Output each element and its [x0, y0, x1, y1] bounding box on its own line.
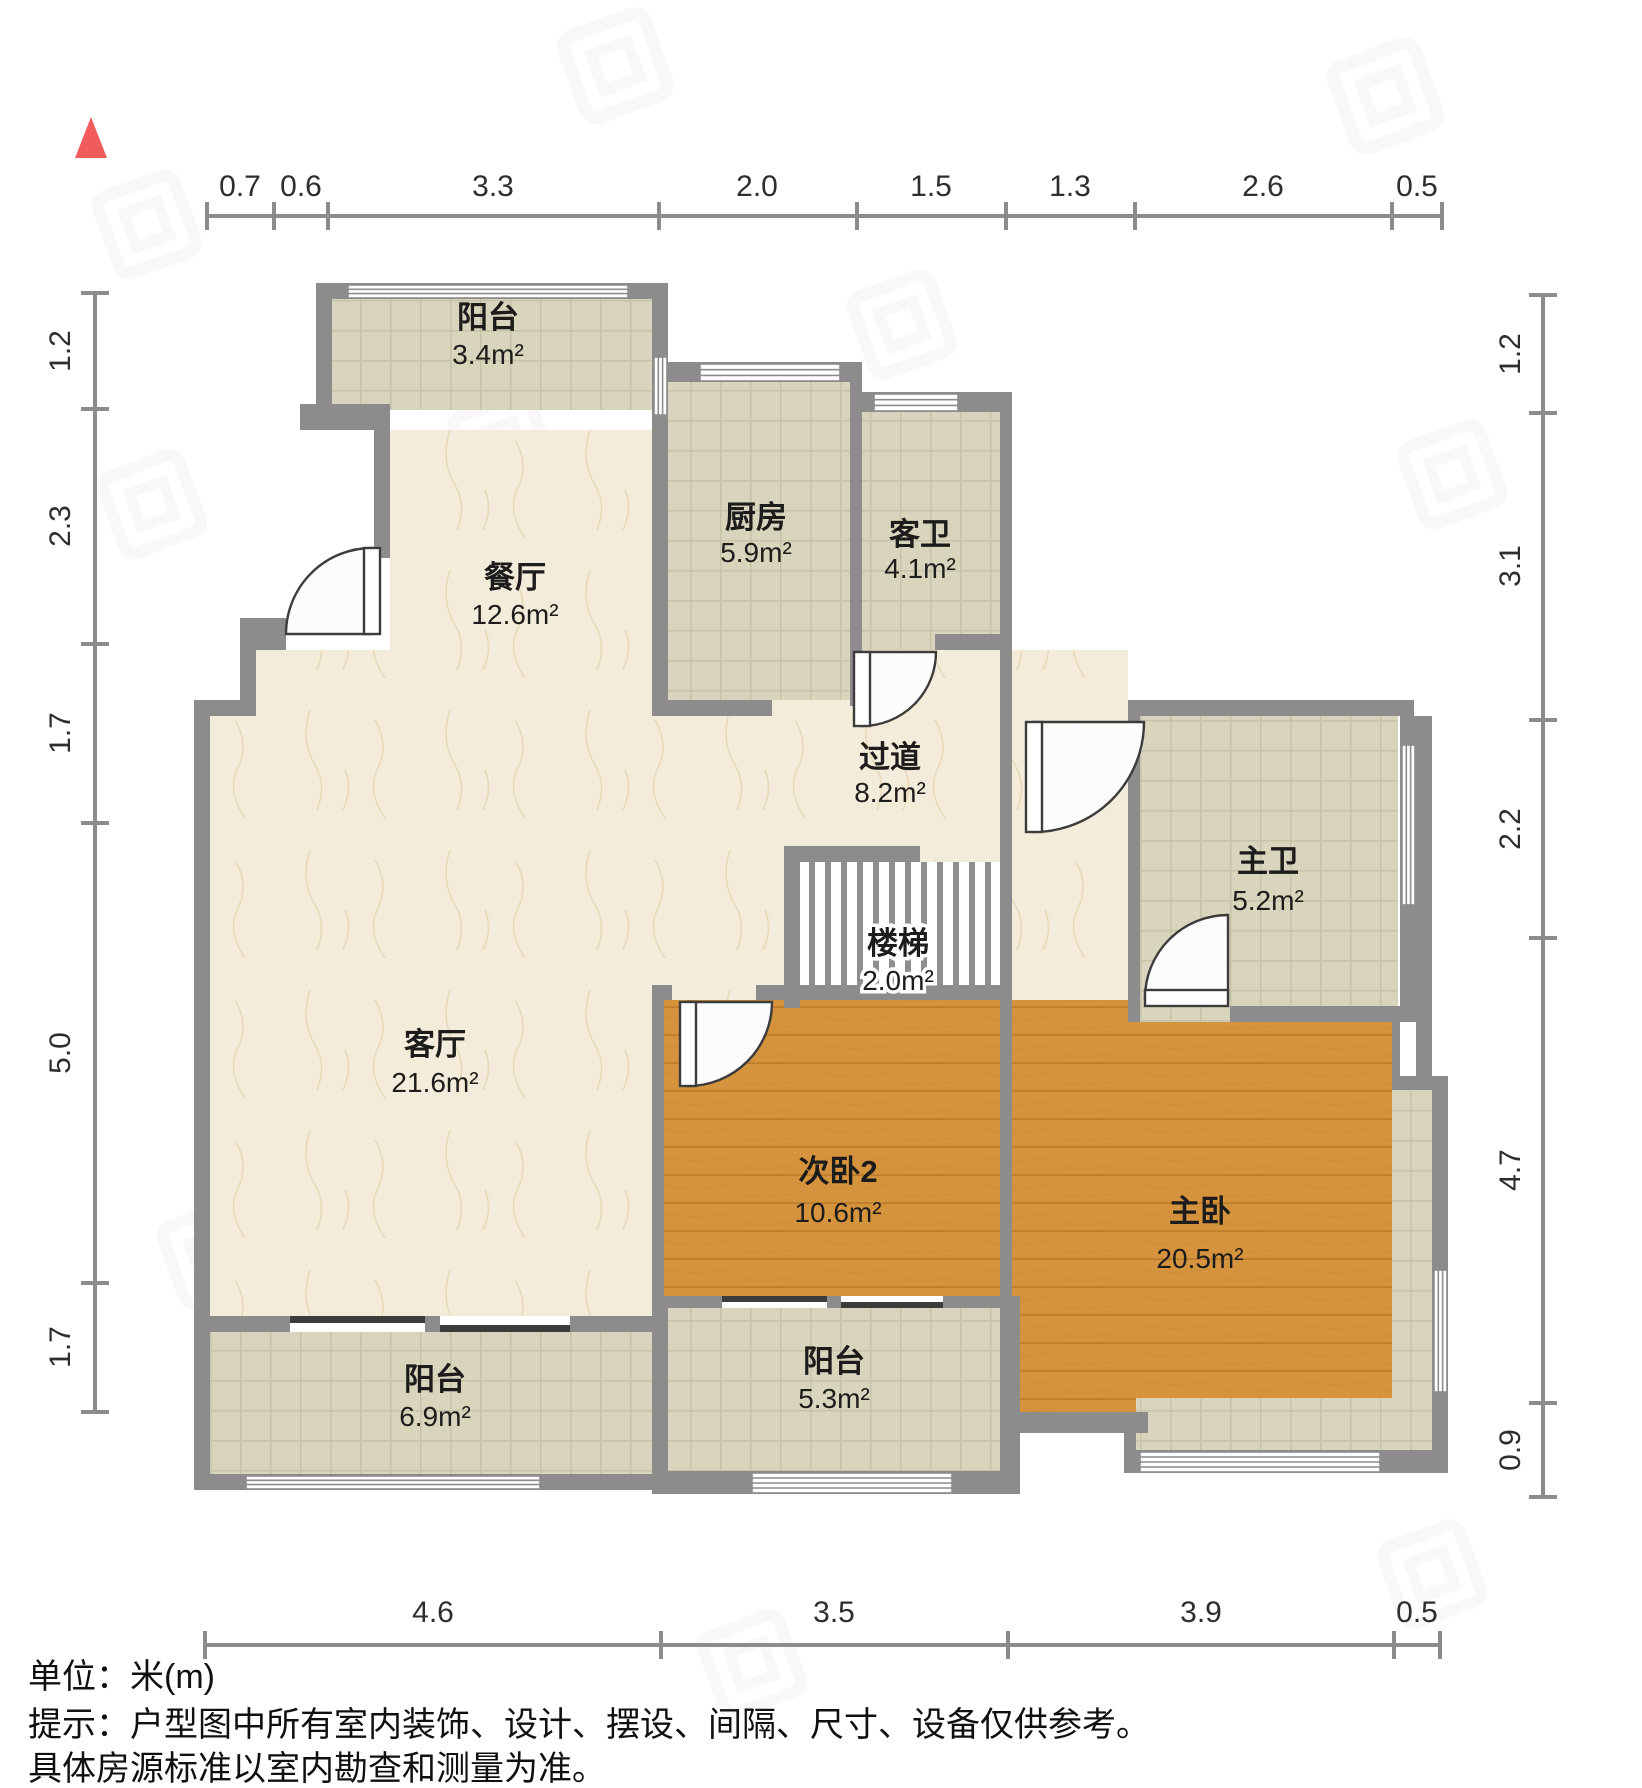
dimension-right: 1.2 3.1 2.2 4.7 0.9	[1494, 295, 1557, 1497]
room-label-dining: 餐厅	[484, 560, 546, 595]
dim-right-1: 3.1	[1494, 545, 1527, 587]
dimension-left: 1.2 2.3 1.7 5.0 1.7	[44, 293, 109, 1412]
dim-top-0: 0.7	[219, 170, 261, 203]
room-label-balcony-mid: 阳台	[803, 1344, 865, 1379]
dim-bottom-0: 4.6	[412, 1596, 454, 1629]
room-area-balcony-left: 6.9m²	[399, 1401, 471, 1432]
footer-tip2: 具体房源标准以室内勘查和测量为准。	[28, 1750, 606, 1788]
dim-left-1: 2.3	[44, 505, 77, 547]
entry-door	[286, 548, 380, 634]
room-area-balcony-top: 3.4m²	[452, 339, 524, 370]
dim-right-2: 2.2	[1494, 808, 1527, 850]
footer-notes: 单位：米(m) 提示：户型图中所有室内装饰、设计、摆设、间隔、尺寸、设备仅供参考…	[28, 1658, 1150, 1788]
window-balcony-mid	[752, 1473, 952, 1493]
dim-bottom-1: 3.5	[813, 1596, 855, 1629]
room-label-balcony-top: 阳台	[457, 300, 519, 335]
window-kitchen	[700, 364, 840, 381]
floorplan-svg: 阳台 3.4m² 厨房 5.9m² 客卫 4.1m² 餐厅 12.6m² 过道 …	[0, 0, 1642, 1788]
room-area-master-bath: 5.2m²	[1232, 885, 1304, 916]
room-area-balcony-mid: 5.3m²	[798, 1383, 870, 1414]
room-area-dining: 12.6m²	[471, 599, 558, 630]
window-bay-bottom	[1140, 1452, 1380, 1472]
dim-right-0: 1.2	[1494, 333, 1527, 375]
dimension-top: 0.7 0.6 3.3 2.0 1.5 1.3 2.6 0.5	[207, 170, 1442, 230]
window-balcony-top	[348, 285, 628, 298]
room-label-living: 客厅	[404, 1027, 466, 1062]
footer-unit: 单位：米(m)	[28, 1658, 215, 1696]
room-label-master-bed: 主卧	[1169, 1194, 1231, 1229]
dim-top-6: 2.6	[1242, 170, 1284, 203]
room-label-kitchen: 厨房	[725, 500, 787, 535]
dim-top-1: 0.6	[280, 170, 322, 203]
window-balcony-right	[654, 357, 667, 415]
window-master-bath	[1402, 745, 1415, 905]
room-label-bed2: 次卧2	[798, 1154, 877, 1189]
room-label-stairs: 楼梯	[867, 926, 929, 961]
room-area-living: 21.6m²	[391, 1067, 478, 1098]
dim-left-4: 1.7	[44, 1326, 77, 1368]
footer-tip1: 提示：户型图中所有室内装饰、设计、摆设、间隔、尺寸、设备仅供参考。	[28, 1706, 1150, 1744]
room-label-master-bath: 主卫	[1237, 844, 1299, 879]
dim-left-0: 1.2	[44, 330, 77, 372]
room-label-hallway: 过道	[859, 740, 921, 775]
room-area-bed2: 10.6m²	[794, 1197, 881, 1228]
room-area-kitchen: 5.9m²	[720, 537, 792, 568]
dim-right-4: 0.9	[1494, 1429, 1527, 1471]
dimension-bottom: 4.6 3.5 3.9 0.5	[205, 1596, 1440, 1659]
room-area-hallway: 8.2m²	[854, 777, 926, 808]
dim-left-3: 5.0	[44, 1032, 77, 1074]
dim-top-5: 1.3	[1049, 170, 1091, 203]
dim-right-3: 4.7	[1494, 1149, 1527, 1191]
room-label-guest-bath: 客卫	[889, 517, 951, 552]
dim-bottom-2: 3.9	[1180, 1596, 1222, 1629]
floorplan-image: 阳台 3.4m² 厨房 5.9m² 客卫 4.1m² 餐厅 12.6m² 过道 …	[0, 0, 1642, 1788]
window-balcony-left	[246, 1476, 540, 1489]
dim-left-2: 1.7	[44, 712, 77, 754]
dim-bottom-3: 0.5	[1396, 1596, 1438, 1629]
room-label-balcony-left: 阳台	[404, 1362, 466, 1397]
north-arrow-icon	[75, 117, 107, 158]
dim-top-3: 2.0	[736, 170, 778, 203]
window-guest-bath	[874, 394, 958, 411]
dim-top-2: 3.3	[472, 170, 514, 203]
room-area-master-bed: 20.5m²	[1156, 1243, 1243, 1274]
room-area-stairs: 2.0m²	[862, 965, 934, 996]
dim-top-7: 0.5	[1396, 170, 1438, 203]
dim-top-4: 1.5	[910, 170, 952, 203]
window-bay-east	[1434, 1270, 1447, 1392]
room-area-guest-bath: 4.1m²	[884, 553, 956, 584]
